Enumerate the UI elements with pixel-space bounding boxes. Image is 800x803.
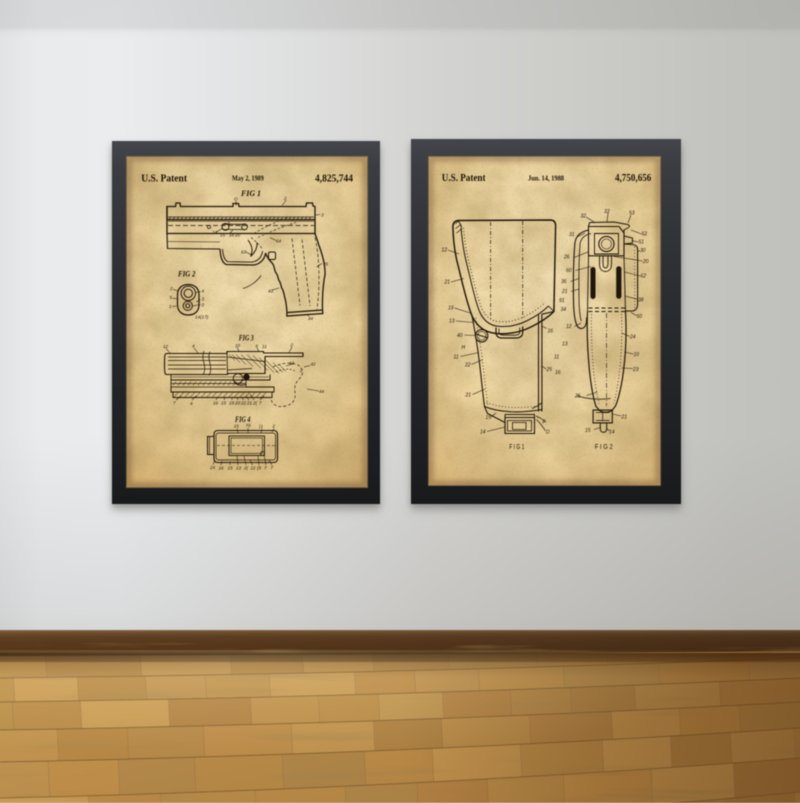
- svg-text:44: 44: [308, 316, 314, 321]
- svg-text:91: 91: [559, 298, 565, 304]
- svg-text:22: 22: [250, 466, 257, 471]
- svg-text:7: 7: [173, 401, 176, 406]
- svg-text:25: 25: [546, 367, 553, 373]
- svg-text:33: 33: [604, 209, 610, 215]
- svg-text:51: 51: [639, 240, 645, 246]
- svg-text:0: 0: [202, 303, 205, 308]
- svg-text:25: 25: [574, 394, 581, 400]
- svg-text:21: 21: [561, 289, 568, 295]
- svg-text:24: 24: [629, 335, 636, 341]
- svg-text:44: 44: [289, 361, 295, 366]
- svg-text:13: 13: [449, 319, 455, 325]
- svg-text:22: 22: [240, 401, 247, 406]
- svg-text:FIG 1: FIG 1: [240, 188, 261, 198]
- svg-text:43: 43: [268, 289, 274, 294]
- svg-text:19: 19: [448, 306, 454, 312]
- svg-text:21: 21: [246, 401, 253, 406]
- svg-text:60: 60: [566, 268, 572, 274]
- svg-text:2: 2: [283, 196, 287, 201]
- svg-text:38: 38: [638, 298, 644, 304]
- svg-text:16: 16: [219, 466, 225, 471]
- svg-text:32: 32: [581, 214, 587, 220]
- svg-text:2: 2: [299, 368, 303, 373]
- svg-text:O: O: [234, 197, 238, 202]
- svg-text:15: 15: [220, 233, 226, 238]
- svg-text:F I G 2: F I G 2: [595, 444, 613, 451]
- svg-text:21: 21: [465, 393, 472, 399]
- svg-text:23: 23: [632, 367, 639, 373]
- svg-text:(1: (1: [259, 424, 264, 429]
- svg-text:24: 24: [211, 230, 218, 235]
- svg-text:24: 24: [209, 465, 216, 470]
- svg-text:13: 13: [562, 342, 568, 348]
- svg-text:May 2, 1989: May 2, 1989: [232, 174, 264, 183]
- svg-text:2(: 2(: [252, 401, 258, 406]
- svg-text:7: 7: [264, 466, 267, 471]
- svg-text:F I G 1: F I G 1: [509, 444, 524, 451]
- svg-text:44: 44: [319, 389, 325, 394]
- svg-text:10: 10: [235, 343, 241, 348]
- svg-text:36: 36: [561, 279, 567, 285]
- svg-text:14(17): 14(17): [195, 315, 209, 320]
- svg-text:63: 63: [241, 250, 247, 255]
- svg-text:4,750,656: 4,750,656: [615, 172, 652, 184]
- svg-text:15: 15: [228, 466, 234, 471]
- svg-text:3: 3: [321, 213, 324, 218]
- svg-text:U.S. Patent: U.S. Patent: [442, 172, 486, 184]
- svg-text:FIG 2: FIG 2: [177, 269, 196, 279]
- svg-text:19: 19: [229, 401, 235, 406]
- svg-text:11: 11: [554, 355, 559, 361]
- svg-text:64: 64: [276, 239, 282, 244]
- svg-text:70: 70: [246, 423, 252, 428]
- svg-text:14: 14: [609, 430, 615, 436]
- svg-text:34: 34: [561, 307, 567, 313]
- svg-text:52: 52: [642, 232, 648, 238]
- svg-text:6: 6: [256, 344, 259, 349]
- svg-text:42: 42: [311, 362, 317, 367]
- svg-text:31: 31: [569, 232, 575, 238]
- svg-text:13: 13: [236, 466, 242, 471]
- svg-text:21: 21: [233, 424, 240, 429]
- svg-text:26: 26: [563, 255, 570, 261]
- svg-text:20: 20: [642, 259, 649, 265]
- svg-text:62: 62: [641, 274, 647, 280]
- svg-text:16: 16: [548, 329, 554, 335]
- svg-text:11: 11: [262, 344, 267, 349]
- svg-text:5: 5: [170, 295, 173, 300]
- svg-text:40: 40: [457, 333, 463, 339]
- svg-text:2: 2: [272, 424, 276, 429]
- svg-text:3: 3: [202, 297, 205, 302]
- svg-text:12: 12: [163, 344, 169, 349]
- svg-text:11: 11: [454, 355, 459, 361]
- svg-text:4: 4: [202, 289, 205, 294]
- svg-text:4: 4: [192, 344, 195, 349]
- svg-text:(9: (9: [257, 466, 262, 471]
- svg-text:Jun. 14, 1988: Jun. 14, 1988: [528, 173, 564, 182]
- svg-text:2(: 2(: [243, 466, 249, 471]
- svg-text:12: 12: [566, 324, 572, 330]
- svg-text:50: 50: [637, 314, 643, 320]
- svg-text:U.S. Patent: U.S. Patent: [141, 172, 187, 184]
- svg-text:20: 20: [234, 401, 241, 406]
- svg-text:D: D: [546, 430, 550, 436]
- svg-text:10: 10: [634, 352, 640, 358]
- svg-text:16: 16: [213, 401, 219, 406]
- svg-text:30: 30: [640, 248, 646, 254]
- svg-text:18: 18: [229, 233, 235, 238]
- svg-text:2: 2: [169, 286, 173, 291]
- svg-text:15: 15: [585, 428, 591, 434]
- svg-text:7: 7: [271, 465, 274, 470]
- svg-text:H: H: [462, 345, 466, 351]
- svg-text:53: 53: [629, 211, 635, 217]
- svg-text:16: 16: [555, 370, 561, 376]
- svg-text:2: 2: [290, 343, 294, 348]
- svg-text:22: 22: [464, 363, 471, 369]
- svg-text:14: 14: [480, 430, 486, 436]
- svg-text:21: 21: [621, 415, 628, 421]
- svg-text:20: 20: [234, 233, 241, 238]
- svg-text:4,825,744: 4,825,744: [315, 172, 353, 184]
- svg-text:7: 7: [259, 401, 262, 406]
- svg-text:76: 76: [323, 262, 329, 267]
- svg-text:15: 15: [221, 401, 227, 406]
- svg-text:FIG 3: FIG 3: [238, 333, 254, 343]
- svg-text:4: 4: [190, 401, 193, 406]
- svg-text:9: 9: [228, 221, 231, 226]
- svg-text:15: 15: [486, 415, 492, 421]
- svg-text:21: 21: [444, 280, 451, 286]
- svg-text:12: 12: [442, 248, 448, 254]
- svg-text:1: 1: [169, 304, 172, 309]
